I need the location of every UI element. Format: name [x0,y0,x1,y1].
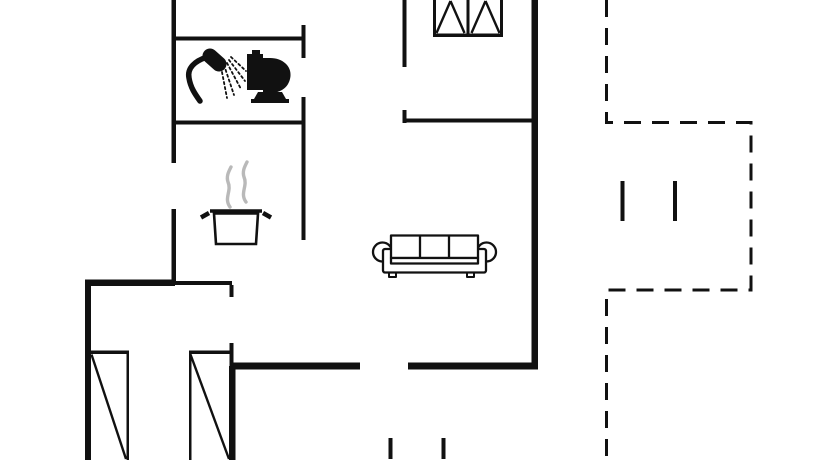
wardrobe-top-edge [189,351,232,355]
sofa-seat-band [391,258,478,264]
wall-segment [408,363,538,370]
step-mark [389,438,393,459]
wall-segment [173,37,304,41]
wall-segment [85,280,175,287]
wall-segment [232,363,360,370]
toilet-foot [251,99,289,103]
toilet-tank [247,54,263,90]
wall-segment [175,281,232,285]
step-mark [442,438,446,459]
wall-segment [230,285,234,297]
plan-background [0,0,834,460]
window-frame [500,0,503,37]
window-frame [467,0,470,37]
window-frame [433,34,503,38]
wall-segment [302,97,306,240]
step-mark [673,181,677,221]
wall-segment [404,119,532,123]
wardrobe-side-edge [127,351,130,460]
sofa-back-cushions [391,236,478,259]
wall-segment [532,0,539,370]
wall-segment [85,280,91,460]
wall-segment [173,121,304,125]
toilet-base [254,92,286,99]
wall-segment [229,366,236,460]
wardrobe-side-edge [189,351,192,460]
floor-plan-drawing [0,0,834,460]
sofa-icon [373,236,496,278]
wardrobe-top-edge [90,351,129,355]
wall-segment [302,25,306,58]
wall-segment [172,0,177,163]
floor-plan-page [0,0,834,460]
wall-segment [172,209,177,284]
pot-body [214,214,258,245]
wall-segment [403,0,407,67]
step-mark [621,181,625,221]
toilet-lid-knob [252,50,260,54]
window-frame [433,0,436,37]
shower-head [210,56,219,64]
